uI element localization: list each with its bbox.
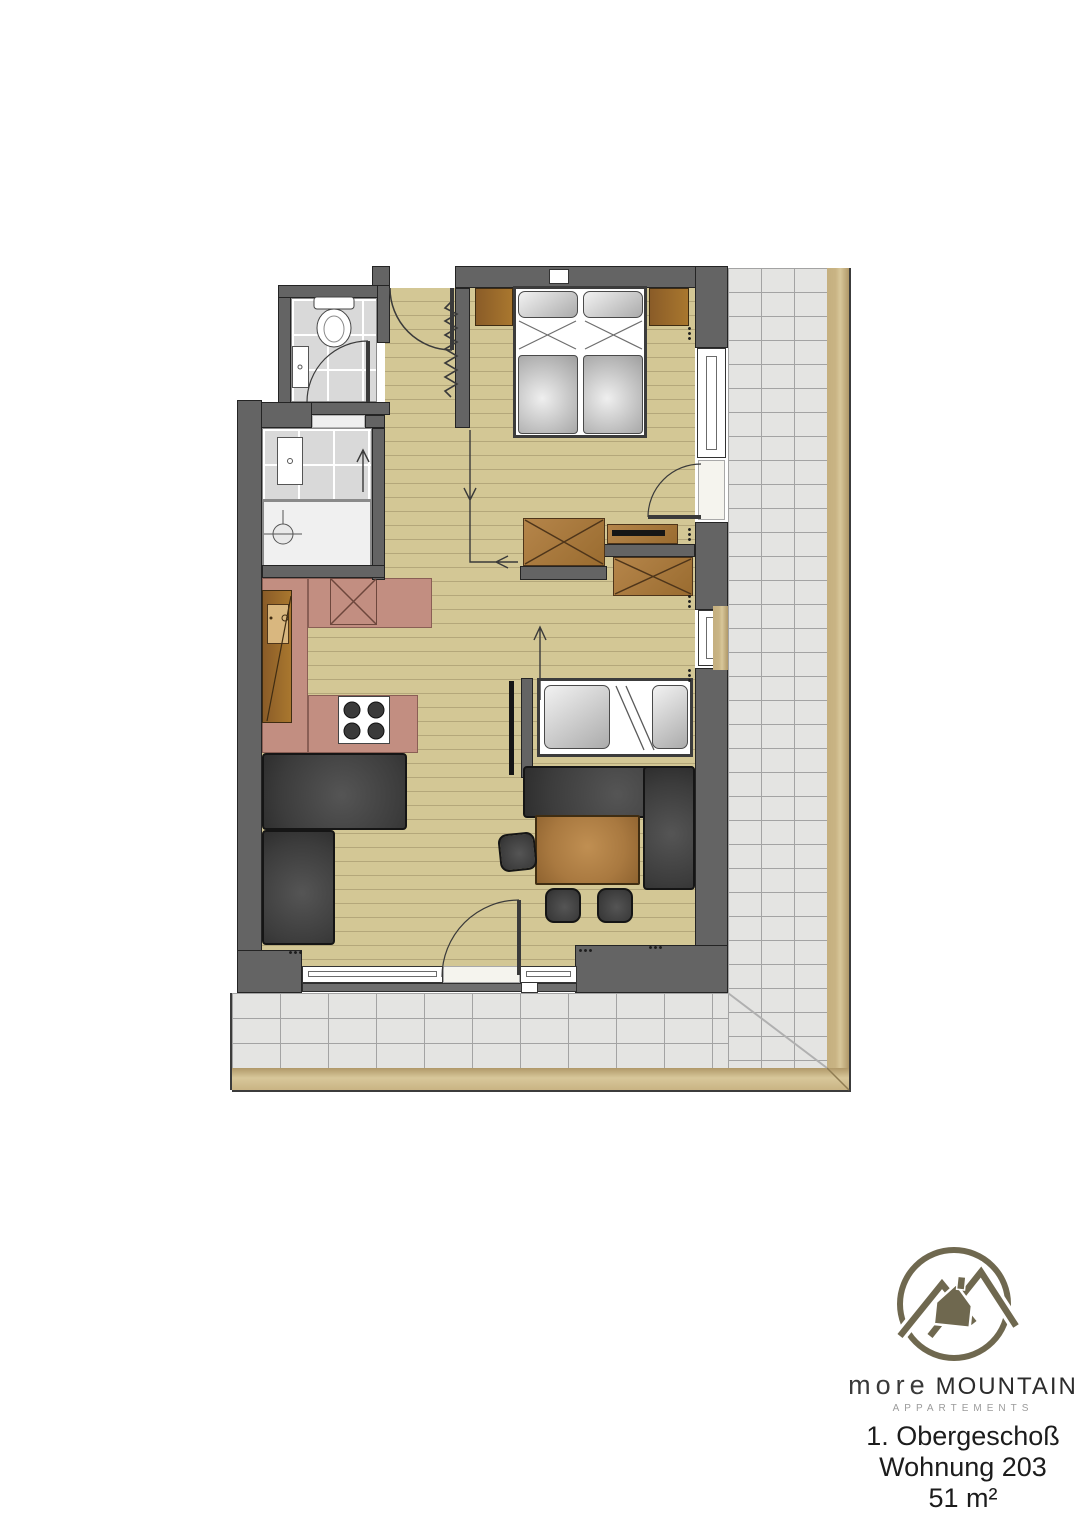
- shutter-coil-7: [648, 945, 662, 950]
- wall-right-upper: [695, 266, 728, 348]
- wall-sideboard-stub: [600, 544, 695, 557]
- wall-bath-right: [372, 428, 385, 580]
- wall-wardrobe-stub: [520, 566, 607, 580]
- wardrobe-small: [613, 557, 693, 596]
- balcony-tiles-bottom: [232, 993, 728, 1068]
- dining-table: [535, 815, 640, 885]
- bedroom-window-frame: [706, 356, 717, 450]
- balcony-border-bottom: [232, 1068, 849, 1090]
- bathroom-washbasin: [277, 437, 303, 485]
- single-bed-blanket: [652, 685, 688, 749]
- dining-chair-1: [497, 831, 538, 873]
- nightstand-left: [475, 288, 513, 326]
- dining-chair-2: [545, 888, 581, 923]
- wall-right-middle: [695, 522, 728, 610]
- wall-bath-top-right: [365, 415, 385, 428]
- shutter-coil-1: [687, 326, 692, 342]
- living-balcony-door-threshold: [443, 966, 520, 983]
- tv-living: [509, 681, 514, 775]
- balcony-outer-edge-bottom: [232, 1090, 851, 1092]
- kitchen-tall-cabinet: [330, 578, 377, 625]
- living-window-left-frame: [308, 971, 437, 977]
- floor-label: 1. Obergeschoß: [813, 1421, 1080, 1452]
- balcony-outer-edge-right: [849, 268, 851, 1092]
- dining-chair-3: [597, 888, 633, 923]
- double-bed-pillow-left: [518, 291, 578, 318]
- wall-entry-partition: [455, 288, 470, 428]
- balcony-border-right: [827, 268, 849, 1090]
- unit-label: Wohnung 203: [813, 1452, 1080, 1483]
- single-bed-mattress: [544, 685, 610, 749]
- balcony-edge-left: [230, 993, 232, 1090]
- wall-wc-right: [377, 285, 390, 343]
- double-bed-duvet-left: [518, 355, 578, 434]
- shutter-coil-5: [288, 950, 302, 955]
- bedroom-balcony-door-threshold: [698, 460, 725, 520]
- dining-bench-right: [643, 766, 695, 890]
- floorplan-page: more MOUNTAIN APPARTEMENTS 1. Obergescho…: [0, 0, 1080, 1528]
- wall-wc-left: [278, 285, 291, 415]
- wall-top-bedroom: [455, 266, 728, 288]
- kitchen-sink: [267, 604, 289, 644]
- corner-sofa-top: [262, 753, 407, 830]
- wall-post-top: [549, 269, 569, 284]
- wall-wc-top: [278, 285, 390, 298]
- tv-bedroom: [612, 530, 665, 536]
- brand-wordmark: more MOUNTAIN: [813, 1370, 1080, 1402]
- brand-name-light: more: [848, 1370, 930, 1401]
- balcony-tiles-right: [728, 268, 827, 1068]
- brand-logo: [884, 1238, 1024, 1378]
- shutter-coil-6: [578, 948, 592, 953]
- area-label: 51 m²: [813, 1483, 1080, 1514]
- wall-post-bottom: [521, 982, 538, 993]
- shutter-coil-2: [687, 527, 692, 543]
- wall-bottom-right-corner: [575, 945, 728, 993]
- corner-sofa-left: [262, 830, 335, 945]
- wardrobe-large: [523, 518, 605, 566]
- bathroom-doorway: [312, 415, 365, 428]
- shutter-coil-4: [687, 668, 692, 682]
- brand-name-bold: MOUNTAIN: [936, 1373, 1078, 1401]
- living-window-right-frame: [526, 971, 571, 977]
- wall-bath-bottom: [262, 565, 385, 578]
- wall-tv-stub: [521, 678, 533, 778]
- shower-tray: [262, 500, 372, 568]
- wall-bottom-left-corner: [237, 950, 302, 993]
- double-bed-duvet-right: [583, 355, 643, 434]
- nightstand-right: [649, 288, 689, 326]
- wc-washbasin: [292, 346, 309, 388]
- dining-window-sill: [713, 606, 728, 670]
- brand-subtitle: APPARTEMENTS: [813, 1403, 1080, 1414]
- wall-exterior-left: [237, 400, 262, 993]
- stove: [338, 696, 390, 744]
- double-bed-pillow-right: [583, 291, 643, 318]
- shutter-coil-3: [687, 594, 692, 608]
